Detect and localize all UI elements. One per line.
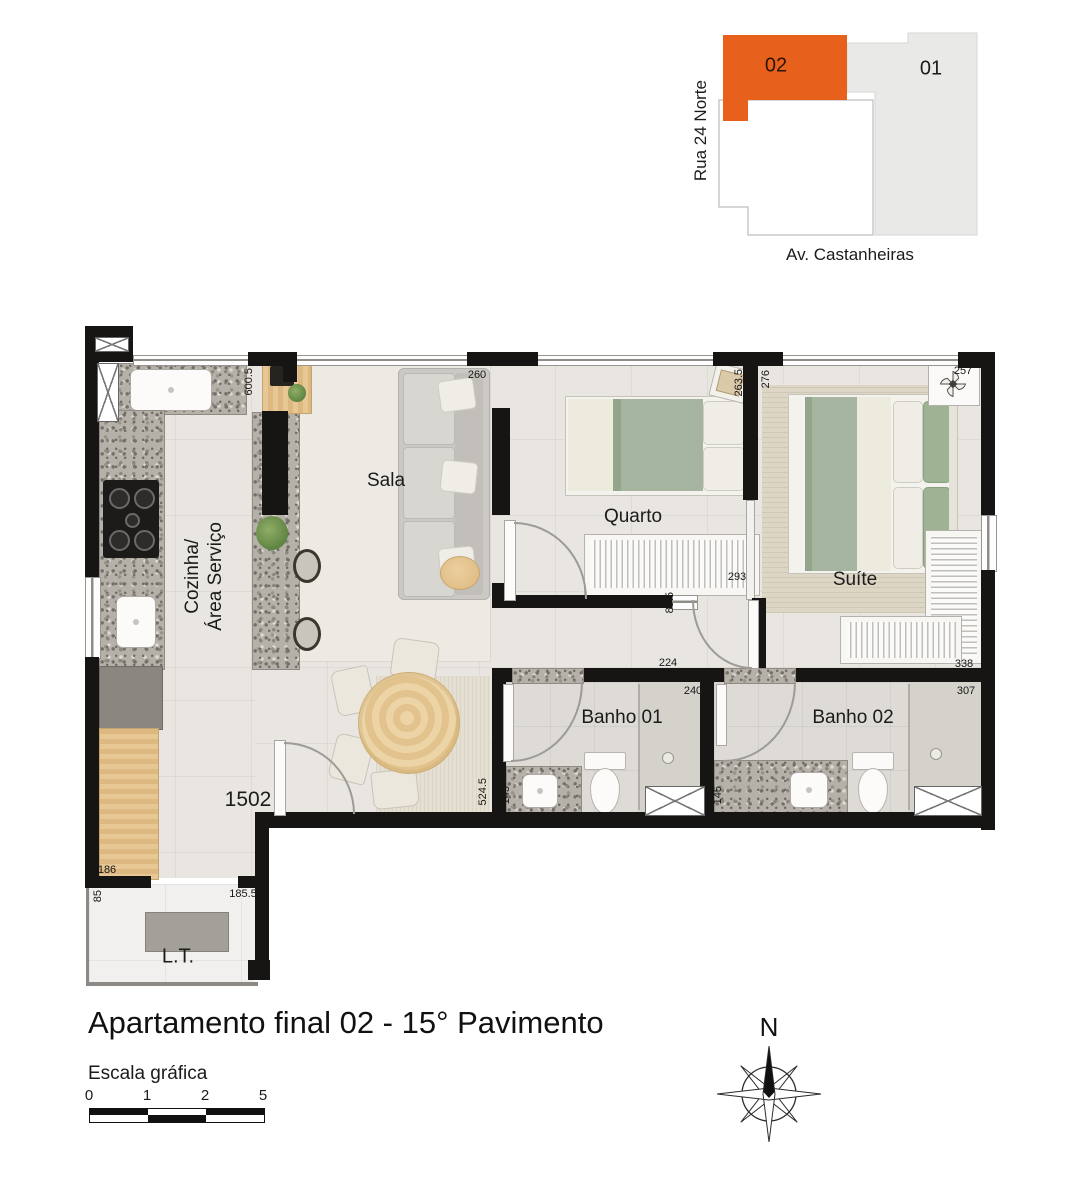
banho2-sink — [790, 772, 828, 808]
floorplan: Sala Quarto Suíte Cozinha/ Área Serviço … — [0, 0, 1080, 1010]
side-table — [440, 556, 480, 590]
banho2-shower-head — [930, 748, 942, 760]
scale-tick-2: 2 — [201, 1087, 209, 1104]
left-wall-lower — [85, 657, 99, 888]
lt-outer-wall-left — [86, 888, 89, 983]
quarto-bed — [565, 396, 753, 496]
scale-tick-0: 0 — [85, 1087, 93, 1104]
shaft-left — [97, 363, 119, 422]
banho2-shower-box — [914, 786, 982, 816]
lt-corner-block — [248, 960, 270, 980]
dim-hall-stub: 89.5 — [664, 592, 676, 613]
dim-kitchen-height: 600.5 — [243, 368, 255, 396]
lt-step-wall — [255, 812, 269, 980]
room-label-banho1: Banho 01 — [581, 707, 662, 729]
dining-table — [358, 672, 460, 774]
dim-sala-width: 260 — [468, 369, 486, 381]
room-label-banho2: Banho 02 — [812, 707, 893, 729]
kitchen-lt-wall-left — [85, 876, 151, 888]
top-wall-seg3 — [713, 352, 783, 366]
dim-banho1-width: 240 — [684, 685, 702, 697]
laundry-sink — [130, 369, 212, 411]
dim-banho2-depth: 145 — [712, 786, 724, 804]
unit-number-label: 1502 — [225, 788, 272, 812]
quarto-wardrobe — [584, 534, 760, 596]
dim-banho2-width: 307 — [957, 685, 975, 697]
scale-tick-1: 1 — [143, 1087, 151, 1104]
kitchen-sink — [116, 596, 156, 648]
room-label-lt: L.T. — [162, 946, 194, 969]
dim-lt-width: 185.5 — [229, 888, 257, 900]
right-window — [981, 515, 997, 572]
kitchen-wood-counter — [99, 728, 159, 880]
floorplan-page: 02 01 Rua 24 Norte Av. Castanheiras — [0, 0, 1080, 1200]
quarto-suite-thinwall — [746, 500, 755, 600]
room-label-quarto: Quarto — [604, 506, 662, 528]
room-label-sala: Sala — [367, 470, 405, 492]
sideboard-plant — [288, 384, 306, 402]
kitchen-lt-wall-right — [238, 876, 268, 888]
dim-banho1-depth: 145 — [500, 786, 512, 804]
bottom-wall — [262, 812, 983, 828]
dining-chair-bottom — [370, 768, 420, 811]
dim-corridor: 224 — [659, 657, 677, 669]
compass-north-label: N — [760, 1012, 779, 1042]
quarto-suite-pillar — [743, 366, 758, 500]
left-window — [85, 577, 101, 659]
right-wall-upper — [981, 352, 995, 515]
dim-quarto-width: 263.5 — [733, 369, 745, 397]
kitchen-appliance — [99, 666, 163, 730]
bar-stool-2 — [293, 617, 321, 651]
shaft-top-corner — [95, 337, 129, 352]
stove-icon — [103, 480, 159, 558]
scale-tick-5: 5 — [259, 1087, 267, 1104]
scale-bar — [89, 1108, 265, 1123]
room-label-suite: Suíte — [833, 569, 877, 591]
island-plant — [256, 516, 288, 550]
dim-suite-depth: 338 — [955, 658, 973, 670]
sala-quarto-pillar — [492, 408, 510, 515]
lt-outer-wall-bottom — [86, 982, 258, 986]
page-title: Apartamento final 02 - 15° Pavimento — [88, 1005, 604, 1041]
banho1-shower-divider — [638, 684, 640, 810]
room-label-cozinha: Cozinha/ Área Serviço — [182, 522, 228, 631]
banho1-sink — [522, 774, 558, 808]
scale-label: Escala gráfica — [88, 1063, 207, 1085]
right-wall-lower — [981, 570, 995, 830]
dim-lt-upper: 186 — [98, 864, 116, 876]
dim-quarto-depth: 293 — [728, 571, 746, 583]
dim-lt-side: 85 — [92, 890, 104, 902]
tv-partition-wall — [262, 411, 288, 515]
dim-hall-depth: 524.5 — [477, 778, 489, 806]
compass-rose-icon: N — [709, 1012, 829, 1152]
banho2-shower-divider — [908, 684, 910, 810]
suite-closet-bottom — [840, 616, 962, 664]
dim-suite-width: 276 — [760, 370, 772, 388]
top-wall-seg2 — [467, 352, 538, 366]
banho1-shower-head — [662, 752, 674, 764]
top-wall-pillar1 — [283, 352, 297, 382]
dim-suite-corner: 257 — [954, 365, 972, 377]
bar-stool-1 — [293, 549, 321, 583]
banho1-shower-box — [645, 786, 705, 816]
